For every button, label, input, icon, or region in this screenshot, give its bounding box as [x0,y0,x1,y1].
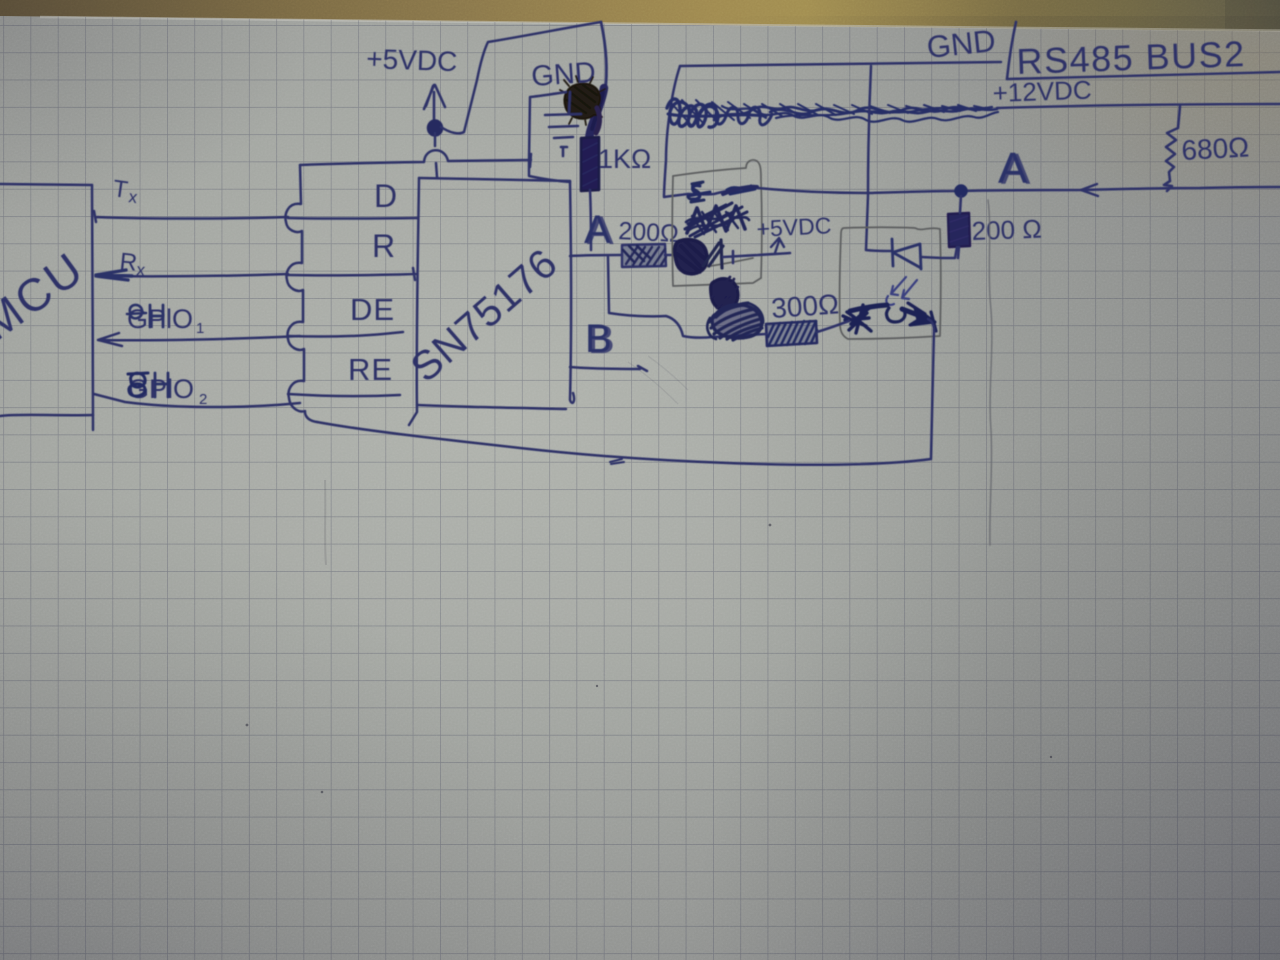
svg-text:+12VDC: +12VDC [992,75,1092,108]
svg-text:2: 2 [199,391,207,408]
svg-text:GPlO: GPlO [128,374,194,404]
svg-text:+5VDC: +5VDC [756,212,832,242]
svg-text:B: B [588,318,615,362]
svg-text:1KΩ: 1KΩ [598,144,651,174]
svg-text:D: D [374,178,397,214]
svg-text:200 Ω: 200 Ω [971,214,1042,246]
svg-text:RE: RE [348,352,393,387]
svg-text:+5VDC: +5VDC [366,43,458,77]
svg-text:680Ω: 680Ω [1181,131,1250,165]
svg-text:300Ω: 300Ω [770,288,840,324]
svg-text:1: 1 [196,320,204,337]
svg-text:DE: DE [350,292,395,327]
svg-text:R: R [372,228,395,264]
svg-text:GND: GND [925,23,997,65]
svg-text:A: A [587,209,614,253]
svg-text:A: A [1001,145,1031,194]
